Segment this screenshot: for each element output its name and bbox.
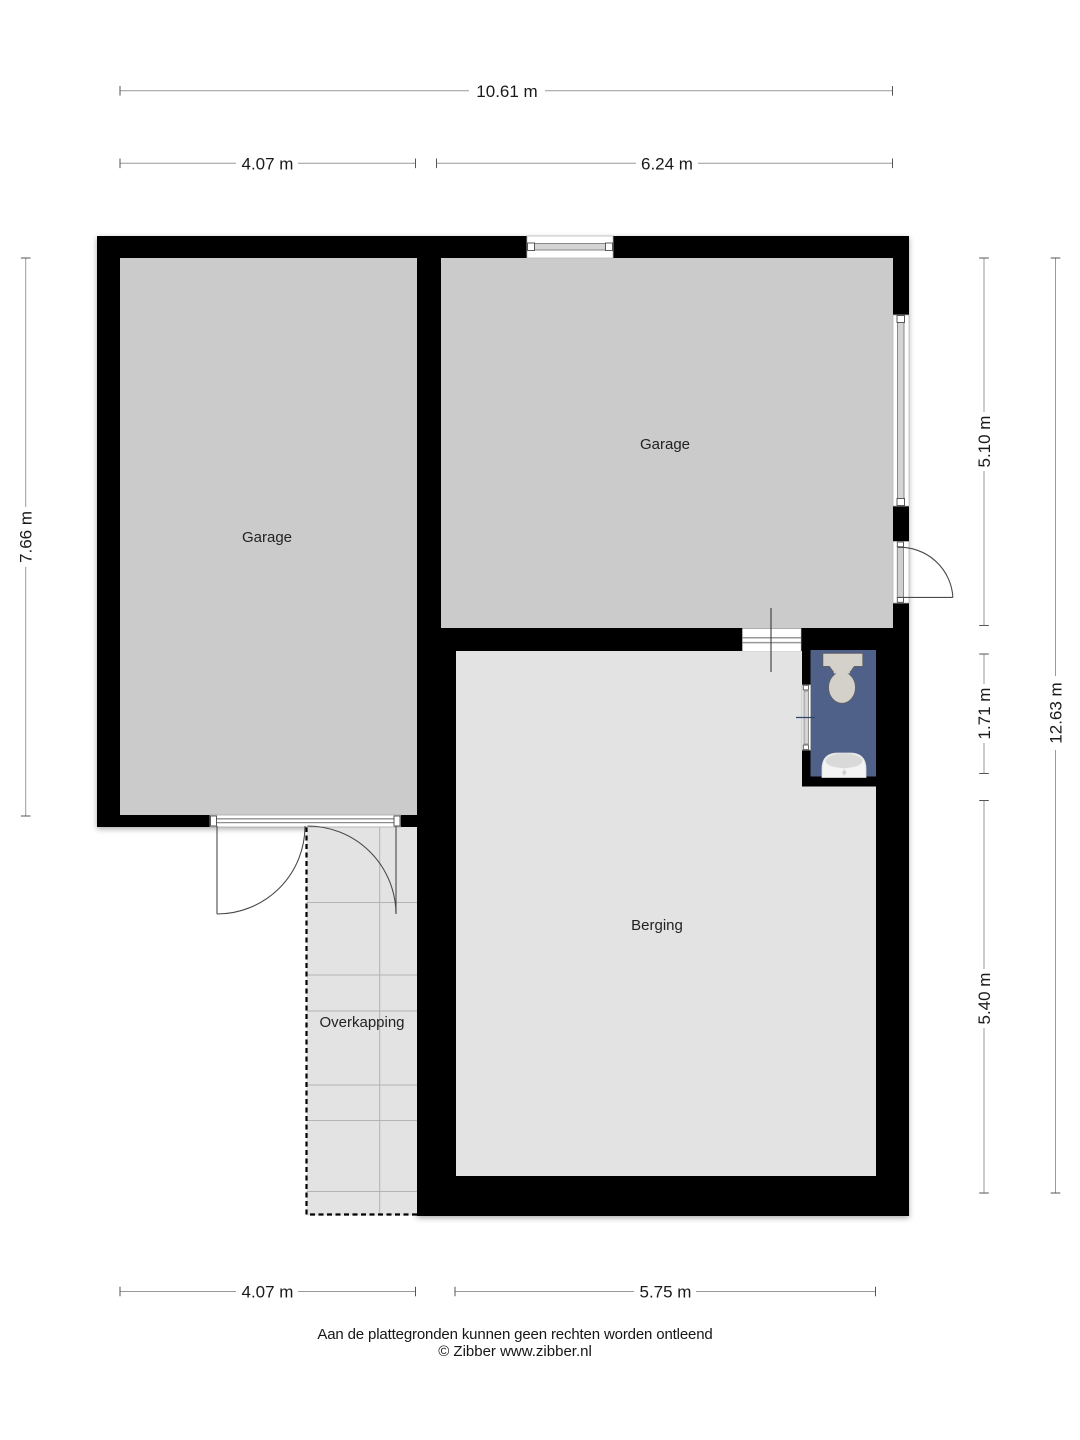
svg-text:Aan de plattegronden kunnen ge: Aan de plattegronden kunnen geen rechten… xyxy=(317,1326,712,1343)
svg-text:7.66 m: 7.66 m xyxy=(17,511,36,563)
svg-text:5.40 m: 5.40 m xyxy=(975,973,994,1025)
svg-text:Garage: Garage xyxy=(242,529,292,546)
svg-text:Garage: Garage xyxy=(640,436,690,453)
svg-text:1.71 m: 1.71 m xyxy=(975,688,994,740)
svg-text:Berging: Berging xyxy=(631,917,683,934)
svg-text:6.24 m: 6.24 m xyxy=(641,154,693,173)
svg-text:5.10 m: 5.10 m xyxy=(975,416,994,468)
svg-text:10.61 m: 10.61 m xyxy=(476,82,537,101)
svg-text:4.07 m: 4.07 m xyxy=(242,154,294,173)
svg-text:5.75 m: 5.75 m xyxy=(640,1283,692,1302)
svg-text:© Zibber www.zibber.nl: © Zibber www.zibber.nl xyxy=(438,1343,592,1360)
svg-text:Overkapping: Overkapping xyxy=(319,1014,404,1031)
svg-text:12.63 m: 12.63 m xyxy=(1047,682,1066,743)
svg-text:4.07 m: 4.07 m xyxy=(242,1283,294,1302)
